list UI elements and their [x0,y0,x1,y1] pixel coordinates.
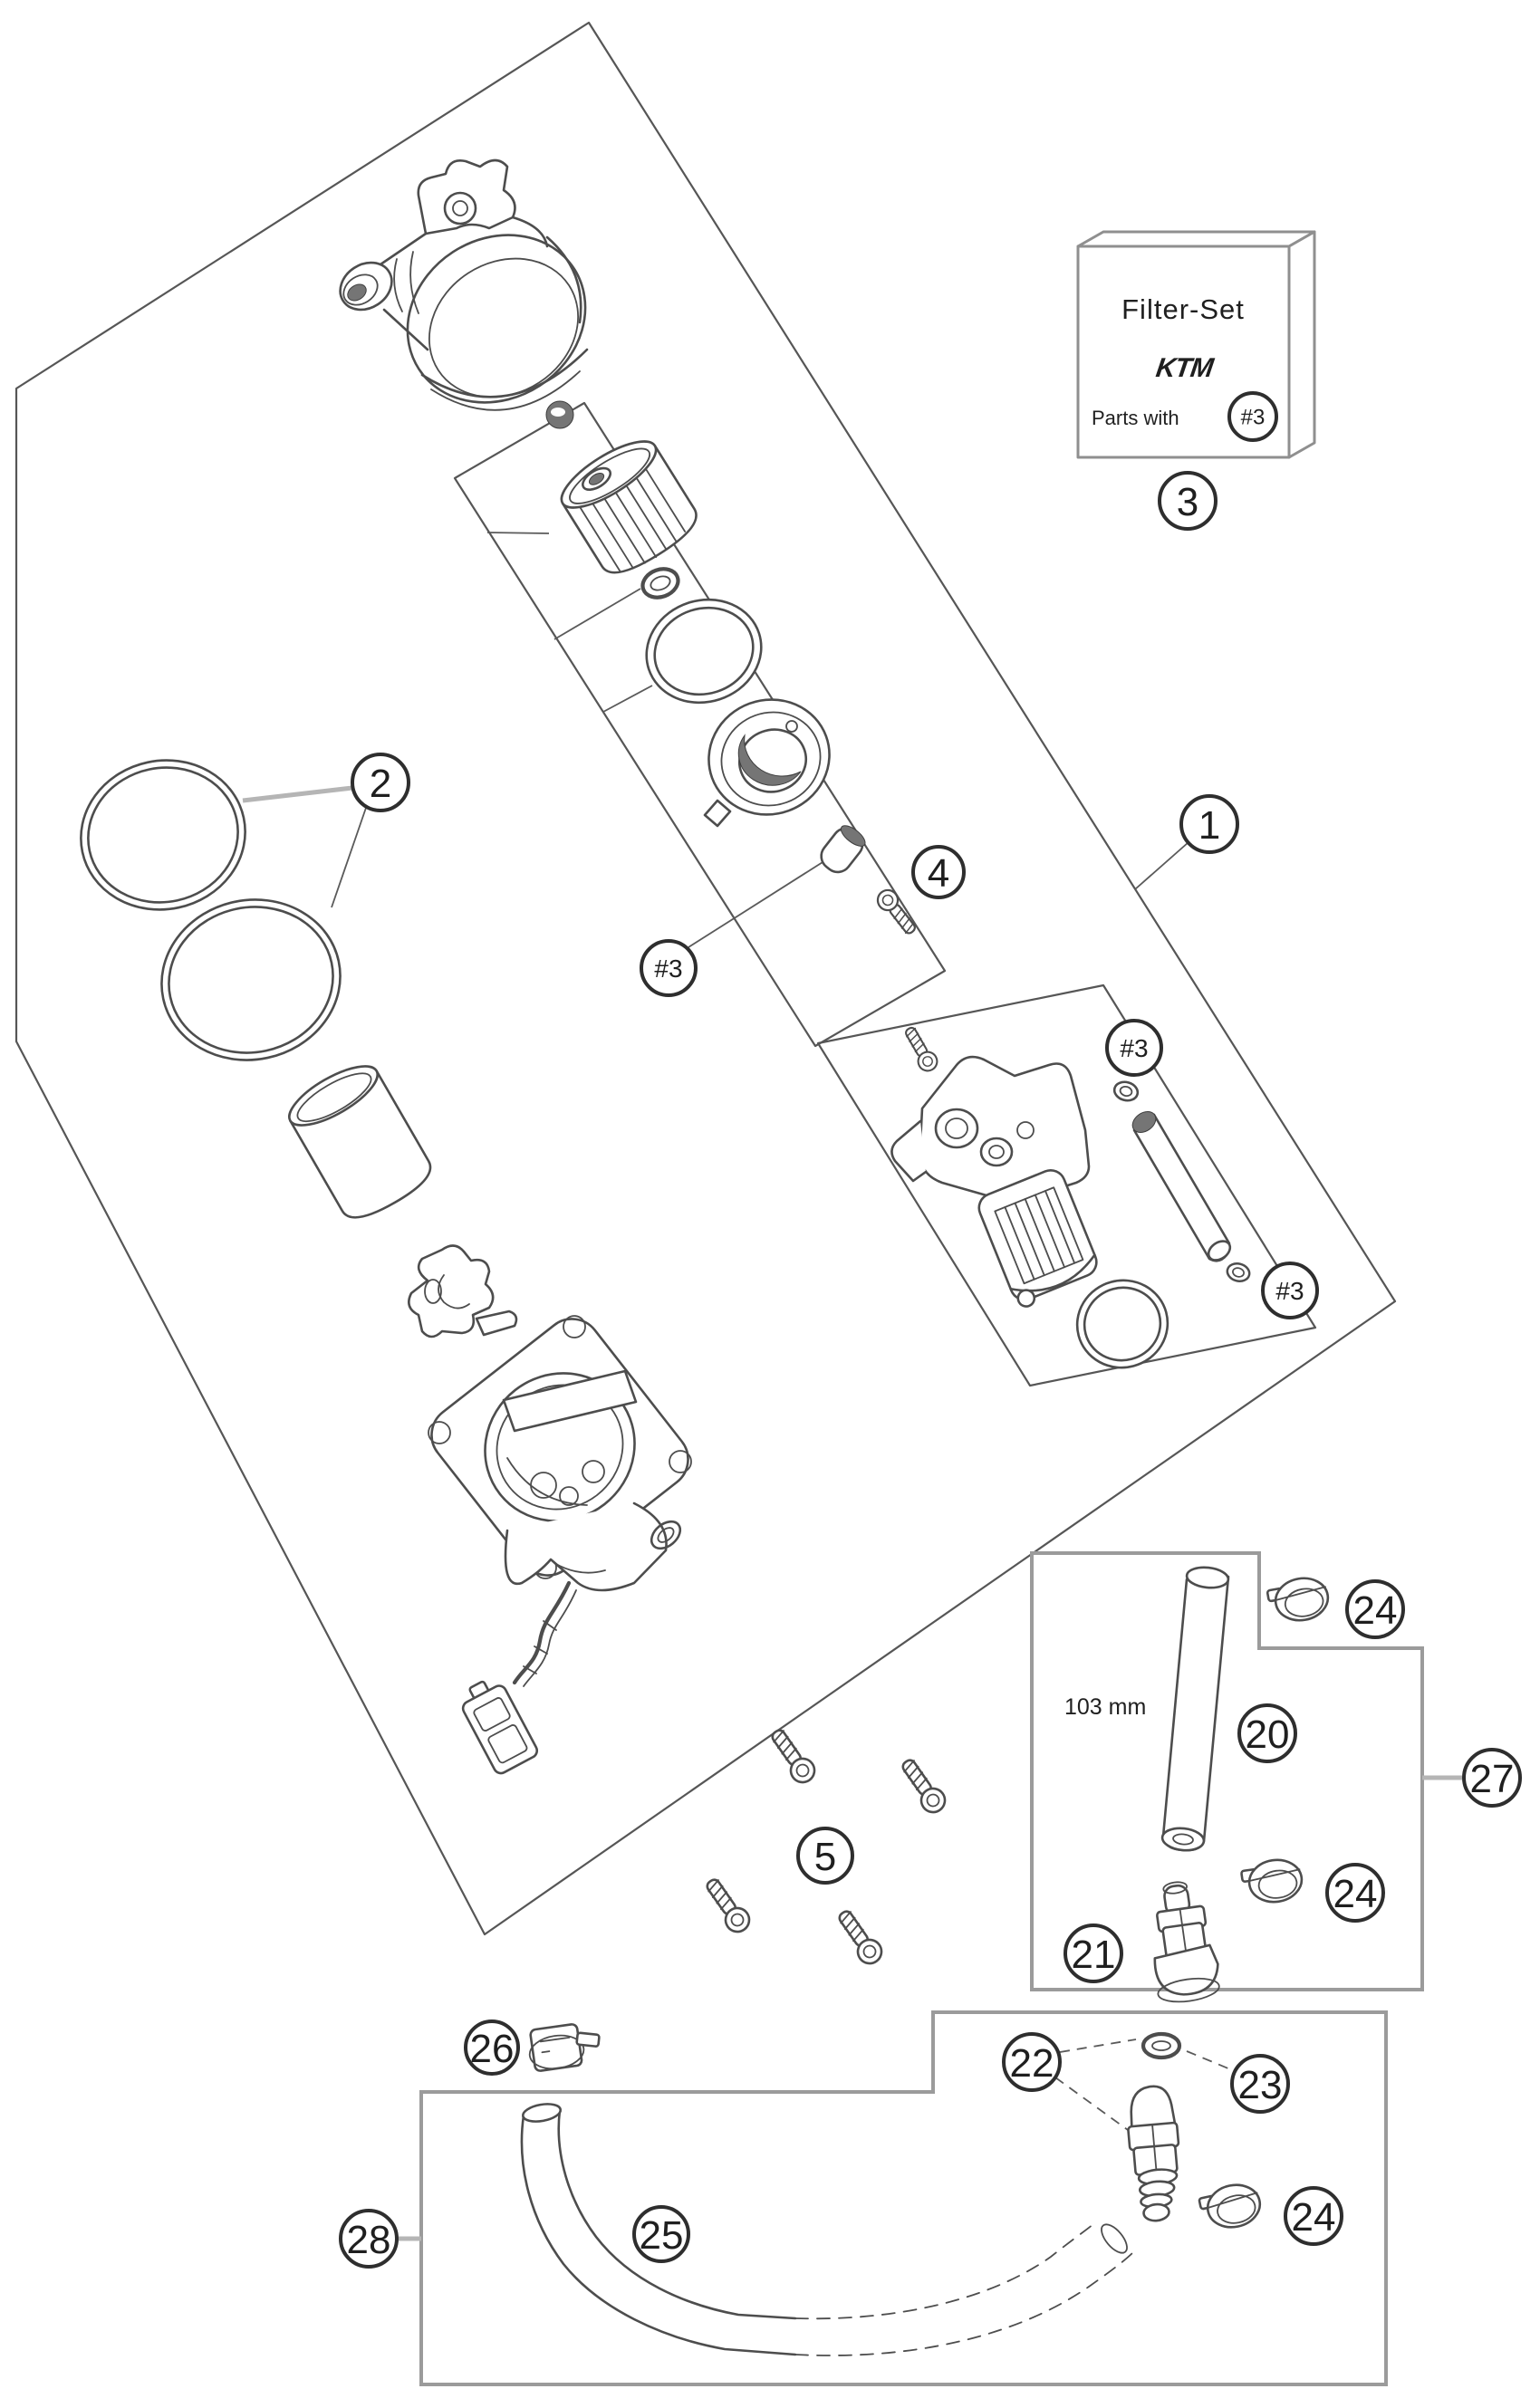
callout-label: 5 [814,1835,836,1879]
callout-24-9[interactable]: 24 [1347,1581,1403,1637]
leader-callout-2b [332,808,366,907]
leader-22-connector [1055,2077,1128,2130]
callout-23-8[interactable]: 23 [1232,2056,1288,2112]
callout-hash3-18[interactable]: #3 [1263,1263,1317,1318]
callout-24-11[interactable]: 24 [1285,2188,1342,2244]
ktm-logo: KTM [1154,353,1216,383]
callout-hash3-17[interactable]: #3 [1107,1021,1161,1075]
nut-lower [1226,1262,1252,1284]
callout-label: #3 [1241,406,1266,430]
callout-label: 24 [1292,2195,1336,2240]
leader-small-ring [554,589,640,639]
callout-label: 21 [1072,1933,1116,1977]
callout-label: 27 [1470,1757,1515,1801]
leader-callout-2a [243,788,352,801]
callout-3-2[interactable]: 3 [1160,473,1216,529]
hose-clamp-24c [1198,2180,1264,2233]
callout-label: 20 [1246,1712,1290,1757]
quick-connector-21 [1143,1878,1223,2005]
fuel-hose-25 [522,2101,1134,2355]
fuel-pump-motor-unit [891,1057,1102,1310]
callout-1-0[interactable]: 1 [1181,796,1237,852]
fuel-return-pipe [1129,1108,1234,1264]
filter-set-box: Filter-Set KTM Parts with [1078,232,1314,457]
grommet-nut [546,401,573,428]
leader-callout-1 [1135,842,1189,889]
oring-large-a [67,745,259,925]
callout-21-6[interactable]: 21 [1065,1925,1121,1981]
callout-label: 1 [1198,803,1220,848]
screw-pump [900,1024,940,1074]
callout-label: 24 [1353,1588,1398,1633]
callout-2-1[interactable]: 2 [352,754,409,811]
callout-label: #3 [1275,1277,1304,1305]
filter-cap [692,683,845,831]
callout-label: 22 [1010,2041,1054,2086]
hose-clamp-24b [1240,1856,1304,1906]
tube-length-label: 103 mm [1064,1694,1146,1720]
callout-label: 26 [470,2027,515,2071]
callout-24-10[interactable]: 24 [1327,1865,1383,1921]
cable-connector [456,1674,540,1776]
callout-27-14[interactable]: 27 [1464,1750,1520,1806]
oring-pump-flange [1067,1271,1177,1378]
callout-hash3-19[interactable]: #3 [1229,393,1276,440]
leader-filter-cartridge [487,532,549,533]
filter-parts-box [455,403,945,1046]
nut-upper [1112,1079,1140,1103]
clamp-26 [526,2020,603,2072]
pump-sleeve [281,1055,438,1227]
fuel-tube-103mm [1161,1566,1229,1853]
impeller-retainer [409,1245,516,1337]
callout-5-4[interactable]: 5 [798,1828,852,1883]
leader-23-ring [1187,2051,1235,2071]
exploded-diagram-canvas: Filter-Set KTM Parts with 103 mm [0,0,1540,2408]
callout-4-3[interactable]: 4 [913,847,964,897]
filter-set-title: Filter-Set [1121,293,1245,325]
callout-label: 25 [640,2213,684,2258]
callout-20-5[interactable]: 20 [1239,1705,1295,1761]
leader-22-ring [1060,2039,1136,2052]
hose-clamp-24a [1266,1574,1332,1626]
callout-26-13[interactable]: 26 [466,2021,518,2074]
callout-28-15[interactable]: 28 [341,2211,397,2267]
callout-25-12[interactable]: 25 [634,2207,688,2261]
callout-label: 3 [1177,480,1198,524]
oring-filter-cap [633,585,775,717]
callout-22-7[interactable]: 22 [1004,2034,1060,2090]
callout-label: 23 [1238,2063,1283,2107]
small-sealing-ring [639,564,682,602]
callout-label: 4 [928,851,949,896]
filter-set-note: Parts with [1092,407,1179,429]
parts-diagram-page: Filter-Set KTM Parts with 103 mm [0,0,1540,2408]
callout-hash3-16[interactable]: #3 [641,941,696,995]
leader-oring-mid [603,686,652,712]
fuel-pump-head-assembly [332,160,618,436]
callout-label: #3 [654,955,682,983]
filter-cartridge [553,429,706,583]
callout-label: #3 [1120,1034,1148,1062]
oring-23 [1143,2034,1179,2058]
oring-large-b [147,883,355,1076]
callout-label: 24 [1333,1872,1378,1916]
bush-cylinder [816,821,870,878]
pump-flange-unit [420,1308,700,1590]
leader-hash3-bush [688,858,830,947]
pump-cable [515,1583,576,1686]
callout-label: 2 [370,762,391,806]
callout-label: 28 [347,2218,391,2262]
fitting-22 [1124,2085,1185,2222]
